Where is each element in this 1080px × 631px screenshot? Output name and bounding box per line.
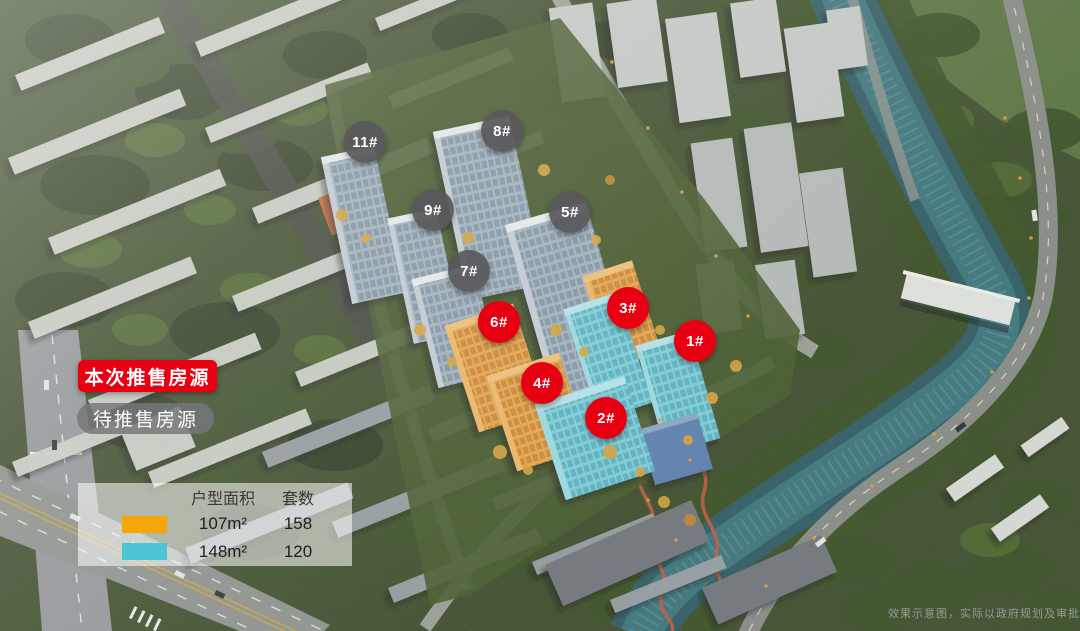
- aerial-site-rendering: 11# 8# 9# 5# 7# 6# 3# 1# 4# 2# 本次推售房源 待推…: [0, 0, 1080, 631]
- badge-on-sale: 本次推售房源: [78, 360, 217, 392]
- building-marker-3: 3#: [607, 287, 649, 329]
- legend-swatch-148-cyan: [122, 543, 167, 560]
- count-value-158: 158: [268, 514, 328, 534]
- building-marker-4: 4#: [521, 362, 563, 404]
- building-marker-6: 6#: [478, 301, 520, 343]
- unit-mix-table: 户型面积 套数 107m² 158 148m² 120: [78, 483, 352, 566]
- building-marker-1: 1#: [674, 320, 716, 362]
- disclaimer-text: 效果示意图，实际以政府规划及审批为准: [888, 605, 1080, 621]
- legend-swatch-107-orange: [122, 516, 167, 533]
- building-marker-8: 8#: [481, 110, 523, 152]
- column-header-count: 套数: [268, 485, 328, 509]
- table-row-107-swatch-cell: [78, 516, 178, 533]
- area-value-107: 107m²: [178, 514, 268, 534]
- building-marker-9: 9#: [412, 189, 454, 231]
- table-row-148-swatch-cell: [78, 543, 178, 560]
- building-marker-5: 5#: [549, 191, 591, 233]
- building-marker-11: 11#: [344, 121, 386, 163]
- badge-upcoming: 待推售房源: [77, 403, 214, 434]
- area-value-148: 148m²: [178, 542, 268, 562]
- building-marker-7: 7#: [448, 250, 490, 292]
- count-value-120: 120: [268, 542, 328, 562]
- column-header-area: 户型面积: [178, 485, 268, 509]
- building-marker-2: 2#: [585, 397, 627, 439]
